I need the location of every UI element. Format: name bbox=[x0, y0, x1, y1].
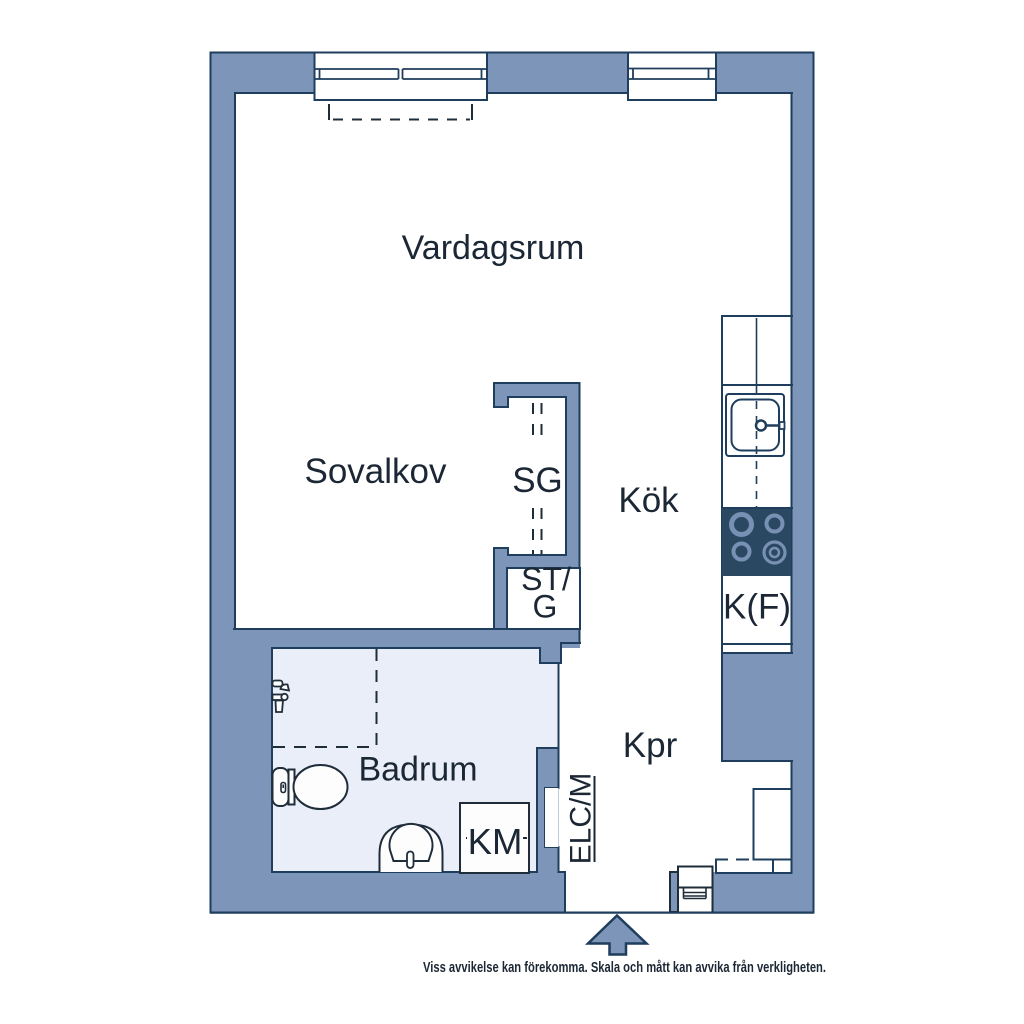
svg-text:Vardagsrum: Vardagsrum bbox=[402, 229, 585, 267]
svg-text:Sovalkov: Sovalkov bbox=[304, 452, 447, 491]
svg-text:Kpr: Kpr bbox=[623, 726, 678, 765]
svg-text:G: G bbox=[533, 589, 558, 625]
svg-text:ELC/M: ELC/M bbox=[565, 773, 598, 865]
svg-text:Viss avvikelse kan förekomma.: Viss avvikelse kan förekomma. Skala och … bbox=[423, 960, 826, 976]
svg-text:K(F): K(F) bbox=[723, 588, 791, 627]
svg-text:Kök: Kök bbox=[618, 481, 679, 520]
svg-text:KM: KM bbox=[468, 821, 523, 862]
svg-text:Badrum: Badrum bbox=[358, 751, 477, 789]
svg-text:SG: SG bbox=[512, 461, 563, 500]
